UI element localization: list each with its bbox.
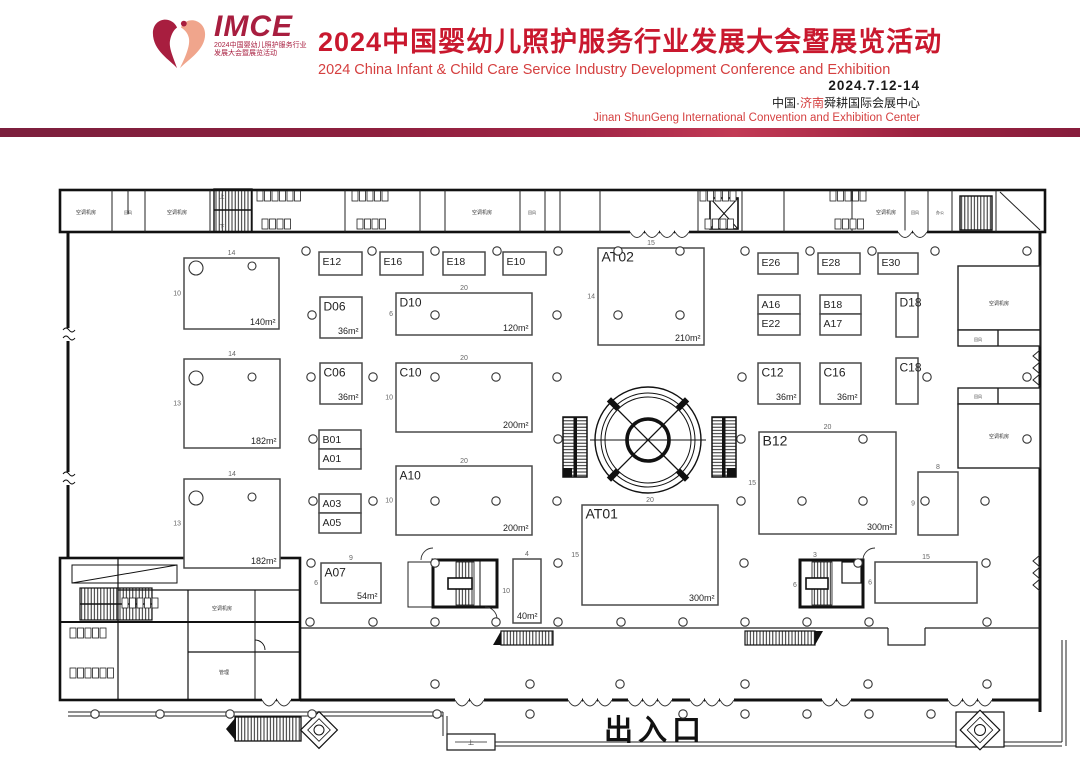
- booth-id: B12: [763, 433, 788, 449]
- toilet-stall: [272, 191, 278, 201]
- booth-D18: D18: [896, 293, 922, 337]
- toilet-stall: [78, 628, 84, 638]
- booth-id: D10: [400, 296, 422, 310]
- booth-dim-top: 4: [525, 551, 529, 558]
- booth-id: C06: [324, 366, 346, 380]
- booth-area: 182m²: [251, 556, 277, 566]
- escalator-right: [712, 417, 736, 477]
- booth-dim-top: 14: [228, 250, 236, 257]
- room-label: 办公: [936, 209, 944, 215]
- column: [923, 373, 931, 381]
- booth-id: C18: [900, 361, 922, 375]
- logo-tagline-1: 2024中国婴幼儿照护服务行业: [214, 42, 307, 50]
- toilet-stall: [270, 219, 276, 229]
- room-label: 空调机房: [876, 209, 896, 216]
- toilet-stall: [93, 668, 99, 678]
- booth-E18: E18: [443, 252, 485, 275]
- toilet-stall: [137, 598, 143, 608]
- column: [982, 559, 990, 567]
- column: [308, 710, 316, 718]
- booth-dim-top: 20: [460, 355, 468, 362]
- booth-C10: C10200m²2010: [385, 355, 532, 432]
- booth-40m²: 40m²410: [502, 551, 541, 623]
- toilet-stall: [130, 598, 136, 608]
- room-label: 空调机房: [472, 209, 492, 216]
- logo-heart-icon: [148, 12, 210, 70]
- event-venue: 中国·济南舜耕国际会展中心: [593, 94, 920, 111]
- room-label: 空调机房: [76, 209, 96, 216]
- inner-south-wall: [300, 628, 1040, 645]
- booth-B18: B18: [820, 295, 861, 314]
- toilet-stall: [93, 628, 99, 638]
- toilet-stall: [835, 219, 841, 229]
- toilet-stall: [108, 668, 114, 678]
- column: [740, 559, 748, 567]
- booth-area: 300m²: [689, 593, 715, 603]
- column: [309, 435, 317, 443]
- booth-id: A03: [323, 498, 342, 510]
- toilet-stall: [277, 219, 283, 229]
- column: [431, 618, 439, 626]
- booth-dim-left: 15: [748, 480, 756, 487]
- column: [737, 497, 745, 505]
- column: [307, 373, 315, 381]
- booth-E12: E12: [319, 252, 362, 275]
- toilet-stall: [70, 628, 76, 638]
- staircase-top-right: [960, 196, 992, 230]
- column: [308, 311, 316, 319]
- toilet-stall: [380, 219, 386, 229]
- booth-area: 36m²: [776, 392, 797, 402]
- column: [554, 435, 562, 443]
- room-label: 管理: [219, 669, 229, 676]
- floor-plan: 出入口 140m²1410182m²1413182m²1413E12E16E18…: [0, 144, 1080, 764]
- booth-A03: A03: [319, 494, 361, 513]
- column: [859, 497, 867, 505]
- column: [806, 247, 814, 255]
- toilet-stall: [122, 598, 128, 608]
- toilet-stall: [372, 219, 378, 229]
- booth-id: C10: [400, 366, 422, 380]
- booth-id: E22: [762, 318, 781, 330]
- top-service-strip: [60, 189, 1045, 232]
- booth-E30: E30: [878, 253, 918, 274]
- toilet-stall: [85, 628, 91, 638]
- booth-182m²: 182m²1413: [173, 351, 280, 448]
- booth-area: 54m²: [357, 591, 378, 601]
- column: [679, 710, 687, 718]
- venue-city: 济南: [800, 96, 824, 110]
- toilet-stall: [70, 668, 76, 678]
- column: [1023, 373, 1031, 381]
- column: [431, 497, 439, 505]
- booth-area: 200m²: [503, 420, 529, 430]
- booth-id: E18: [447, 256, 466, 268]
- stair-dim: 3: [813, 552, 817, 559]
- column: [369, 618, 377, 626]
- booth-id: C16: [824, 366, 846, 380]
- toilet-stall: [728, 219, 734, 229]
- booth-C06: C0636m²: [320, 363, 362, 404]
- toilet-stall: [100, 668, 106, 678]
- booth-AT01: AT01300m²2015: [571, 497, 718, 605]
- room-label: 回风: [911, 210, 919, 215]
- booth-C12: C1236m²: [758, 363, 800, 404]
- column: [614, 247, 622, 255]
- booth-dim-left: 6: [314, 580, 318, 587]
- booth-id: A16: [762, 299, 781, 311]
- toilet-stall: [845, 191, 851, 201]
- column: [306, 618, 314, 626]
- booth-area: 36m²: [837, 392, 858, 402]
- walkway-ornament-right: [956, 710, 1004, 750]
- toilet-stall: [100, 628, 106, 638]
- column: [248, 373, 256, 381]
- booth-id: B01: [323, 434, 342, 446]
- toilet-stall: [265, 191, 271, 201]
- toilet-stall: [382, 191, 388, 201]
- toilet-stall: [145, 598, 151, 608]
- booth-id: D18: [900, 296, 922, 310]
- column: [493, 247, 501, 255]
- column: [741, 710, 749, 718]
- column: [433, 710, 441, 718]
- column: [741, 680, 749, 688]
- toilet-stall: [78, 668, 84, 678]
- booth-id: A01: [323, 453, 342, 465]
- booth-A10: A10200m²2010: [385, 458, 532, 535]
- booth-E26: E26: [758, 253, 798, 274]
- booth-33: 156: [868, 554, 977, 603]
- booth-D06: D0636m²: [320, 297, 362, 338]
- toilet-stall: [365, 219, 371, 229]
- room-label: 回风: [124, 210, 132, 215]
- logo-tagline-2: 发展大会暨展览活动: [214, 50, 307, 58]
- booth-E10: E10: [503, 252, 546, 275]
- column: [431, 373, 439, 381]
- booth-A16: A16: [758, 295, 800, 314]
- stair-core-center: [408, 548, 497, 619]
- booth-C16: C1636m²: [820, 363, 861, 404]
- room-label: 回风: [974, 394, 982, 399]
- column: [865, 710, 873, 718]
- toilet-stall: [830, 191, 836, 201]
- booth-id: A17: [824, 318, 843, 330]
- booth-id: C12: [762, 366, 784, 380]
- column: [737, 435, 745, 443]
- header: IMCE 2024中国婴幼儿照护服务行业 发展大会暨展览活动 2024中国婴幼儿…: [0, 0, 1080, 144]
- column: [741, 618, 749, 626]
- booth-dim-left: 6: [868, 580, 872, 587]
- booth-area: 36m²: [338, 326, 359, 336]
- column: [156, 710, 164, 718]
- toilet-stall: [850, 219, 856, 229]
- room-label: 空调机房: [989, 300, 1009, 307]
- event-info: 2024.7.12-14 中国·济南舜耕国际会展中心 Jinan ShunGen…: [593, 78, 920, 124]
- booth-area: 200m²: [503, 523, 529, 533]
- booth-dim-left: 9: [911, 501, 915, 508]
- room-label: 空调机房: [212, 605, 232, 612]
- booth-id: E16: [384, 256, 403, 268]
- booth-dim-left: 10: [502, 588, 510, 595]
- booth-A17: A17: [820, 314, 861, 335]
- booth-dim-top: 14: [228, 471, 236, 478]
- toilet-stall: [715, 191, 721, 201]
- escalator-left: [563, 417, 587, 477]
- column: [307, 559, 315, 567]
- toilet-stall: [357, 219, 363, 229]
- column: [803, 618, 811, 626]
- toilet-stall: [257, 191, 263, 201]
- booth-area: 182m²: [251, 436, 277, 446]
- booth-dim-left: 13: [173, 401, 181, 408]
- booth-id: AT01: [586, 506, 619, 522]
- column: [189, 261, 203, 275]
- event-venue-en: Jinan ShunGeng International Convention …: [593, 112, 920, 124]
- toilet-stall: [723, 191, 729, 201]
- booth-dim-top: 20: [646, 497, 654, 504]
- column: [189, 371, 203, 385]
- toilet-stall: [295, 191, 301, 201]
- booth-AT02: AT02210m²1514: [587, 240, 704, 345]
- column: [921, 497, 929, 505]
- toilet-stall: [730, 191, 736, 201]
- column: [554, 559, 562, 567]
- booth-dim-top: 15: [922, 554, 930, 561]
- toilet-stall: [860, 191, 866, 201]
- booth-dim-top: 20: [460, 285, 468, 292]
- column: [868, 247, 876, 255]
- column: [553, 311, 561, 319]
- header-accent-bar: [0, 128, 1080, 137]
- toilet-stall: [285, 219, 291, 229]
- booth-dim-left: 10: [385, 498, 393, 505]
- column: [617, 618, 625, 626]
- column: [526, 680, 534, 688]
- toilet-stall: [367, 191, 373, 201]
- room-label: 回风: [528, 210, 536, 215]
- toilet-stall: [700, 191, 706, 201]
- booth-dim-left: 10: [385, 395, 393, 402]
- exhibition-floorplan-page: IMCE 2024中国婴幼儿照护服务行业 发展大会暨展览活动 2024中国婴幼儿…: [0, 0, 1080, 764]
- column: [309, 497, 317, 505]
- booth-B01: B01: [319, 430, 361, 449]
- toilet-stall: [262, 219, 268, 229]
- toilet-stall: [720, 219, 726, 229]
- floor-plan-svg: 出入口 140m²1410182m²1413182m²1413E12E16E18…: [0, 144, 1080, 764]
- column: [492, 373, 500, 381]
- toilet-stall: [375, 191, 381, 201]
- column: [431, 311, 439, 319]
- booth-dim-top: 14: [228, 351, 236, 358]
- booth-id: E30: [882, 257, 901, 269]
- column: [676, 311, 684, 319]
- toilet-stall: [713, 219, 719, 229]
- column: [798, 497, 806, 505]
- column: [226, 710, 234, 718]
- booth-area: 120m²: [503, 323, 529, 333]
- column: [738, 373, 746, 381]
- column: [983, 680, 991, 688]
- page-subtitle: 2024 China Infant & Child Care Service I…: [318, 62, 978, 78]
- booth-29: 89: [911, 464, 958, 535]
- column: [431, 247, 439, 255]
- column: [492, 497, 500, 505]
- booth-dim-top: 8: [936, 464, 940, 471]
- booth-area: 36m²: [338, 392, 359, 402]
- booth-id: A05: [323, 517, 342, 529]
- booth-id: E28: [822, 257, 841, 269]
- booth-area: 140m²: [250, 317, 276, 327]
- booth-id: E26: [762, 257, 781, 269]
- column: [189, 491, 203, 505]
- column: [554, 618, 562, 626]
- booth-D10: D10120m²206: [389, 285, 532, 335]
- booth-E28: E28: [818, 253, 860, 274]
- logo: IMCE 2024中国婴幼儿照护服务行业 发展大会暨展览活动: [148, 12, 307, 70]
- booth-dim-left: 10: [173, 291, 181, 298]
- room-label: 上: [219, 193, 224, 200]
- column: [859, 435, 867, 443]
- booth-id: E10: [507, 256, 526, 268]
- booth-C18: C18: [896, 358, 922, 404]
- booth-dim-top: 20: [824, 424, 832, 431]
- booth-A01: A01: [319, 449, 361, 469]
- column: [553, 373, 561, 381]
- toilet-stall: [360, 191, 366, 201]
- booth-E16: E16: [380, 252, 423, 275]
- column: [369, 373, 377, 381]
- toilet-stall: [705, 219, 711, 229]
- room-label: 空调机房: [989, 433, 1009, 440]
- column: [864, 680, 872, 688]
- column: [91, 710, 99, 718]
- column: [981, 497, 989, 505]
- room-label: 下: [219, 224, 224, 230]
- booth-dim-left: 13: [173, 521, 181, 528]
- column: [854, 559, 862, 567]
- booth-E22: E22: [758, 314, 800, 335]
- column: [248, 262, 256, 270]
- column: [741, 247, 749, 255]
- column: [302, 247, 310, 255]
- toilet-stall: [352, 191, 358, 201]
- column: [553, 497, 561, 505]
- walkway-ornament-left: [301, 712, 338, 749]
- column: [865, 618, 873, 626]
- column: [248, 493, 256, 501]
- booth-area: 40m²: [517, 611, 538, 621]
- column: [368, 247, 376, 255]
- column: [927, 710, 935, 718]
- toilet-stall: [853, 191, 859, 201]
- booth-dim-top: 15: [647, 240, 655, 247]
- toilet-stall: [838, 191, 844, 201]
- booth-B12: B12300m²2015: [748, 424, 896, 534]
- toilet-stall: [843, 219, 849, 229]
- column: [679, 618, 687, 626]
- toilet-stall: [280, 191, 286, 201]
- logo-acronym: IMCE: [214, 12, 307, 42]
- room-label: 回风: [974, 337, 982, 342]
- booth-dim-left: 15: [571, 552, 579, 559]
- column: [983, 618, 991, 626]
- toilet-stall: [152, 598, 158, 608]
- booth-dim-top: 9: [349, 555, 353, 562]
- column: [676, 247, 684, 255]
- booth-A05: A05: [319, 513, 361, 533]
- booth-dim-left: 14: [587, 294, 595, 301]
- column: [431, 680, 439, 688]
- column: [1023, 247, 1031, 255]
- page-title: 2024中国婴幼儿照护服务行业发展大会暨展览活动: [318, 20, 978, 59]
- column: [1023, 435, 1031, 443]
- stair-dim: 6: [793, 582, 797, 589]
- booth-140m²: 140m²1410: [173, 250, 279, 329]
- booth-id: A10: [400, 469, 422, 483]
- column: [931, 247, 939, 255]
- booth-dim-left: 6: [389, 311, 393, 318]
- booth-id: E12: [323, 256, 342, 268]
- entrance-label: 出入口: [604, 714, 706, 747]
- booth-dim-top: 20: [460, 458, 468, 465]
- rotunda: [590, 387, 706, 493]
- stair-core-right: [800, 548, 875, 607]
- toilet-stall: [858, 219, 864, 229]
- column: [492, 618, 500, 626]
- column: [616, 680, 624, 688]
- toilet-stall: [287, 191, 293, 201]
- booth-A07: A0754m²96: [314, 555, 381, 603]
- column: [526, 710, 534, 718]
- booth-id: A07: [325, 566, 347, 580]
- column: [554, 247, 562, 255]
- toilet-stall: [708, 191, 714, 201]
- event-date: 2024.7.12-14: [593, 78, 920, 93]
- booth-area: 210m²: [675, 333, 701, 343]
- booth-id: D06: [324, 300, 346, 314]
- room-label: 空调机房: [167, 209, 187, 216]
- toilet-stall: [85, 668, 91, 678]
- column: [614, 311, 622, 319]
- column: [431, 559, 439, 567]
- column: [803, 710, 811, 718]
- room-label: 上: [468, 739, 474, 747]
- right-wall-rooms: [958, 266, 1040, 591]
- booth-id: B18: [824, 299, 843, 311]
- booth-area: 300m²: [867, 522, 893, 532]
- booth-182m²: 182m²1413: [173, 471, 280, 568]
- column: [369, 497, 377, 505]
